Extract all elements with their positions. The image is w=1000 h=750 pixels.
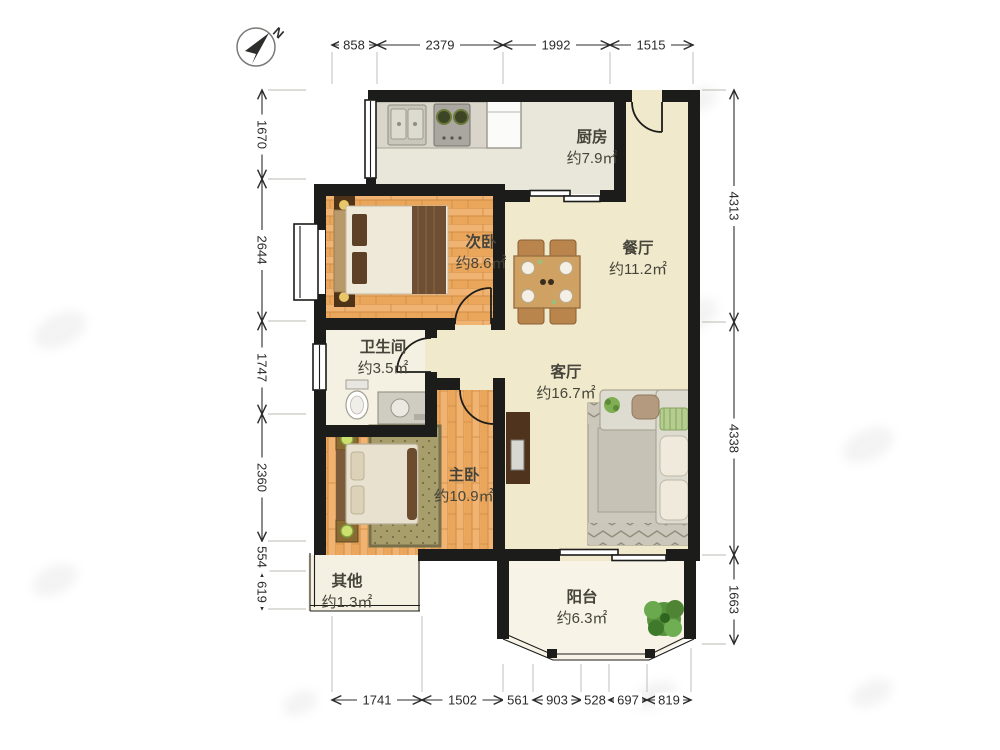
master-bedroom-furniture <box>336 426 440 546</box>
balcony-area: 约6.3㎡ <box>557 610 608 627</box>
dim-bottom-3: 903 <box>546 693 568 708</box>
dim-bottom-6: 819 <box>658 693 680 708</box>
tv-cabinet-icon <box>506 412 530 484</box>
dim-bottom-4: 528 <box>584 693 606 708</box>
plant-icon <box>604 397 620 413</box>
bathroom-label: 卫生间 <box>360 337 407 356</box>
balcony-label: 阳台 <box>566 587 597 606</box>
living-label: 客厅 <box>550 362 582 381</box>
kitchen-label: 厨房 <box>576 127 607 146</box>
kitchen-window <box>365 100 376 178</box>
master-bedroom-area: 约10.9㎡ <box>434 488 493 505</box>
stove-icon <box>434 104 470 146</box>
dim-left-0: 1670 <box>255 120 270 149</box>
compass-icon: N <box>237 24 287 66</box>
bathroom-area: 约3.5㎡ <box>358 360 409 377</box>
vanity-icon <box>378 392 430 424</box>
lamp-icon <box>341 525 353 537</box>
other-label: 其他 <box>331 571 363 590</box>
dim-right-2: 1663 <box>727 585 742 614</box>
toilet-icon <box>346 380 368 419</box>
sink-icon <box>388 105 426 145</box>
dim-left-3: 2360 <box>255 463 270 492</box>
plant-icon <box>644 600 684 637</box>
dim-left-5: 619 <box>255 581 270 603</box>
bay-window <box>294 224 325 300</box>
dim-left-2: 1747 <box>255 353 270 382</box>
dim-top-2: 1992 <box>542 38 571 53</box>
second-bedroom-furniture <box>334 196 448 307</box>
bed-icon <box>336 444 418 524</box>
dimension-left: 1670 2644 1747 2360 554 619 <box>255 90 270 609</box>
dim-right-1: 4338 <box>727 424 742 453</box>
master-bedroom-label: 主卧 <box>448 465 480 484</box>
dining-label: 餐厅 <box>621 238 654 257</box>
dim-top-1: 2379 <box>426 38 455 53</box>
dim-bottom-0: 1741 <box>363 693 392 708</box>
second-bedroom-area: 约8.6㎡ <box>456 255 507 272</box>
dim-right-0: 4313 <box>727 192 742 221</box>
bathroom-window <box>313 344 326 390</box>
dim-left-4: 554 <box>255 546 270 568</box>
floor-plan: 厨房 约7.9㎡ 次卧 约8.6㎡ 餐厅 约11.2㎡ 卫生间 约3.5㎡ 客厅… <box>0 0 1000 750</box>
dimension-top: 858 2379 1992 1515 <box>332 38 693 53</box>
dim-bottom-5: 697 <box>617 693 639 708</box>
sofa-icon <box>598 390 692 524</box>
dimension-right: 4313 4338 1663 <box>727 90 742 644</box>
dim-left-1: 2644 <box>255 236 270 265</box>
dimension-bottom: 1741 1502 561 903 528 697 819 <box>332 693 691 708</box>
kitchen-area: 约7.9㎡ <box>567 150 618 167</box>
dim-top-0: 858 <box>343 38 365 53</box>
floor-plan-page: 厨房 约7.9㎡ 次卧 约8.6㎡ 餐厅 约11.2㎡ 卫生间 约3.5㎡ 客厅… <box>0 0 1000 750</box>
living-area: 约16.7㎡ <box>536 385 595 402</box>
living-room-furniture <box>588 390 692 545</box>
second-bedroom-label: 次卧 <box>465 232 497 251</box>
dim-bottom-1: 1502 <box>448 693 477 708</box>
dim-top-3: 1515 <box>637 38 666 53</box>
dim-bottom-2: 561 <box>507 693 529 708</box>
bed-icon <box>334 206 448 294</box>
kitchen-counter <box>376 97 521 148</box>
other-area: 约1.3㎡ <box>322 594 373 611</box>
fridge-icon <box>487 97 521 148</box>
dining-area: 约11.2㎡ <box>609 261 667 278</box>
